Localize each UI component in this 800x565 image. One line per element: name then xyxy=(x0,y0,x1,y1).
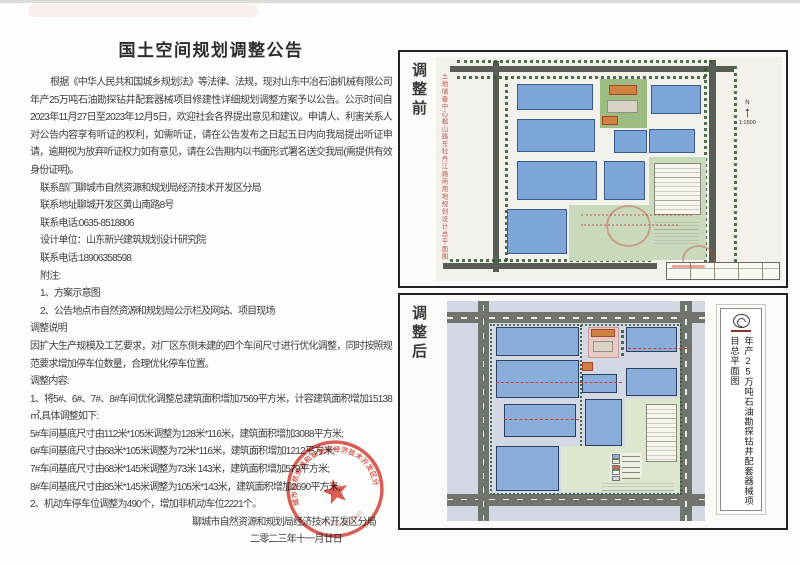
announcement-body: 国土空间规划调整公告 根据《中华人民共和国城乡规划法》等法律、法规，现对山东中冶… xyxy=(30,40,392,549)
legend-row xyxy=(612,471,640,475)
gatehouse-building xyxy=(602,116,618,125)
plan-title-box: 年产25万吨石油勘探钻井配套器械项目总平面图 xyxy=(720,308,762,511)
workshop-building xyxy=(496,360,579,397)
road xyxy=(493,61,499,272)
workshop-building xyxy=(504,404,576,437)
legend-chip xyxy=(612,454,620,459)
workshop-5-line: 5#车间基底尺寸由112米*105米调整为128米*116米，建筑面积增加308… xyxy=(30,426,392,444)
page-title: 国土空间规划调整公告 xyxy=(30,40,392,62)
legend-line xyxy=(622,461,640,462)
site-plan-after xyxy=(447,301,705,521)
contact-phone-2: 联系电话:18906358598 xyxy=(30,250,392,268)
scanned-announcement-page: 国土空间规划调整公告 根据《中华人民共和国城乡规划法》等法律、法规，现对山东中冶… xyxy=(0,0,800,565)
title-block-stamp xyxy=(672,265,706,268)
contact-address: 联系地址聊城开发区黄山南路8号 xyxy=(30,197,392,215)
workshop-building xyxy=(507,209,568,254)
workshop-building xyxy=(517,161,597,200)
design-institute-logo-icon xyxy=(733,314,750,328)
plan-before-side-caption: 土地储备中心都山路东牡丹江路南用地规划设计总平面图 xyxy=(438,73,449,266)
legend-line xyxy=(622,456,640,457)
tree-row xyxy=(457,76,706,79)
stamp-mark xyxy=(581,224,678,226)
stamp-mark xyxy=(606,205,651,248)
tree-row xyxy=(457,60,713,63)
tree-row xyxy=(734,66,737,268)
adjust-item-2: 2、机动车停车位调整为490个，增加非机动车位2221个。 xyxy=(30,496,392,514)
workshop-building xyxy=(651,85,701,114)
plan-title-strip: 年产25万吨石油勘探钻井配套器械项目总平面图 xyxy=(716,304,766,515)
scan-smudge xyxy=(28,4,258,17)
design-unit: 设计单位：山东新兴建筑规划设计研究院 xyxy=(30,232,392,250)
panel-after-adjustment: 调整后 xyxy=(398,293,788,530)
workshop-8-line: 8#车间基底尺寸由85米*145米调整为105米*143米，建筑面积增加2690… xyxy=(30,479,392,497)
panel-before-adjustment: 调整前 土地储备中心都山路东牡丹江路南用地规划设计总平面图 xyxy=(398,50,788,288)
office-building xyxy=(593,341,614,352)
site-plan-before: 土地储备中心都山路东牡丹江路南用地规划设计总平面图 xyxy=(436,57,782,281)
scale-label: 1:1500 xyxy=(727,120,769,127)
workshop-building xyxy=(626,368,676,396)
contact-department: 联系部门聊城市自然资源和规划局经济技术开发区分局 xyxy=(30,180,392,198)
scan-edge xyxy=(0,0,800,3)
legend-line xyxy=(622,478,640,479)
indicator-table xyxy=(654,163,701,215)
red-dashed-line xyxy=(628,348,693,349)
legend-row xyxy=(612,454,640,458)
north-arrow-icon: ↑ xyxy=(727,106,769,120)
indicator-table xyxy=(646,404,677,461)
admin-building xyxy=(609,85,637,95)
legend-line xyxy=(622,467,640,468)
contact-phone-1: 联系电话:0635-8518806 xyxy=(30,215,392,233)
workshop-building xyxy=(614,130,647,154)
legend-chip xyxy=(612,459,620,464)
adjust-note: 因扩大生产规模及工艺要求，对厂区东侧未建的四个车间尺寸进行优化调整，同时按照规范… xyxy=(30,338,392,373)
stamp-mark xyxy=(581,214,692,216)
adjust-content-label: 调整内容: xyxy=(30,373,392,391)
legend-chip xyxy=(612,470,620,475)
legend-line xyxy=(622,472,640,473)
legend xyxy=(610,453,642,477)
office-building xyxy=(607,100,638,113)
workshop-building xyxy=(496,446,559,491)
gatehouse-building xyxy=(582,362,592,372)
intro-paragraph: 根据《中华人民共和国城乡规划法》等法律、法规，现对山东中冶石油机械有限公司年产2… xyxy=(30,74,392,180)
adjust-item-1: 1、将5#、6#、7#、8#车间优化调整总建筑面积增加7569平方米，计容建筑面… xyxy=(30,391,392,426)
road xyxy=(709,60,716,275)
workshop-building xyxy=(496,327,579,356)
workshop-6-line: 6#车间基底尺寸由68米*105米调整为72米*116米，建筑面积增加1212平… xyxy=(30,443,392,461)
workshop-building xyxy=(517,84,593,110)
plan-title-vertical: 年产25万吨石油勘探钻井配套器械项目总平面图 xyxy=(727,336,755,510)
legend-row xyxy=(612,460,640,464)
note-2: 2、公告地点市自然资源和规划局公示栏及网站、项目现场 xyxy=(30,303,392,321)
notes-label: 附注: xyxy=(30,268,392,286)
note-1: 1、方案示意图 xyxy=(30,285,392,303)
legend-notes xyxy=(602,480,674,491)
workshop-building xyxy=(582,374,617,394)
workshop-building xyxy=(604,161,646,200)
road-center-line xyxy=(483,301,485,521)
workshop-building xyxy=(649,129,696,154)
panel-after-label: 调整后 xyxy=(408,305,429,362)
legend-chip xyxy=(612,465,620,470)
north-indicator: N ↑ 1:1500 xyxy=(727,100,769,127)
legend-row xyxy=(612,465,640,469)
red-dashed-line xyxy=(504,419,579,420)
tree-cluster xyxy=(621,330,624,356)
panel-before-label: 调整前 xyxy=(408,62,429,119)
admin-building xyxy=(591,329,614,338)
road xyxy=(443,263,658,269)
workshop-building xyxy=(585,399,622,446)
red-dashed-line xyxy=(496,382,622,383)
signature-line: 聊城市自然资源和规划局经济技术开发区分局 xyxy=(30,514,392,532)
workshop-building xyxy=(517,119,595,153)
workshop-7-line: 7#车间基底尺寸由68米*145米调整为73米 143米，建筑面积增加579平方… xyxy=(30,461,392,479)
title-block xyxy=(666,262,780,280)
date-line: 二零二三年十一月廿日 xyxy=(30,531,392,549)
road-center-line xyxy=(685,301,687,521)
adjust-note-label: 调整说明 xyxy=(30,320,392,338)
logo-caption-mark xyxy=(731,330,751,332)
